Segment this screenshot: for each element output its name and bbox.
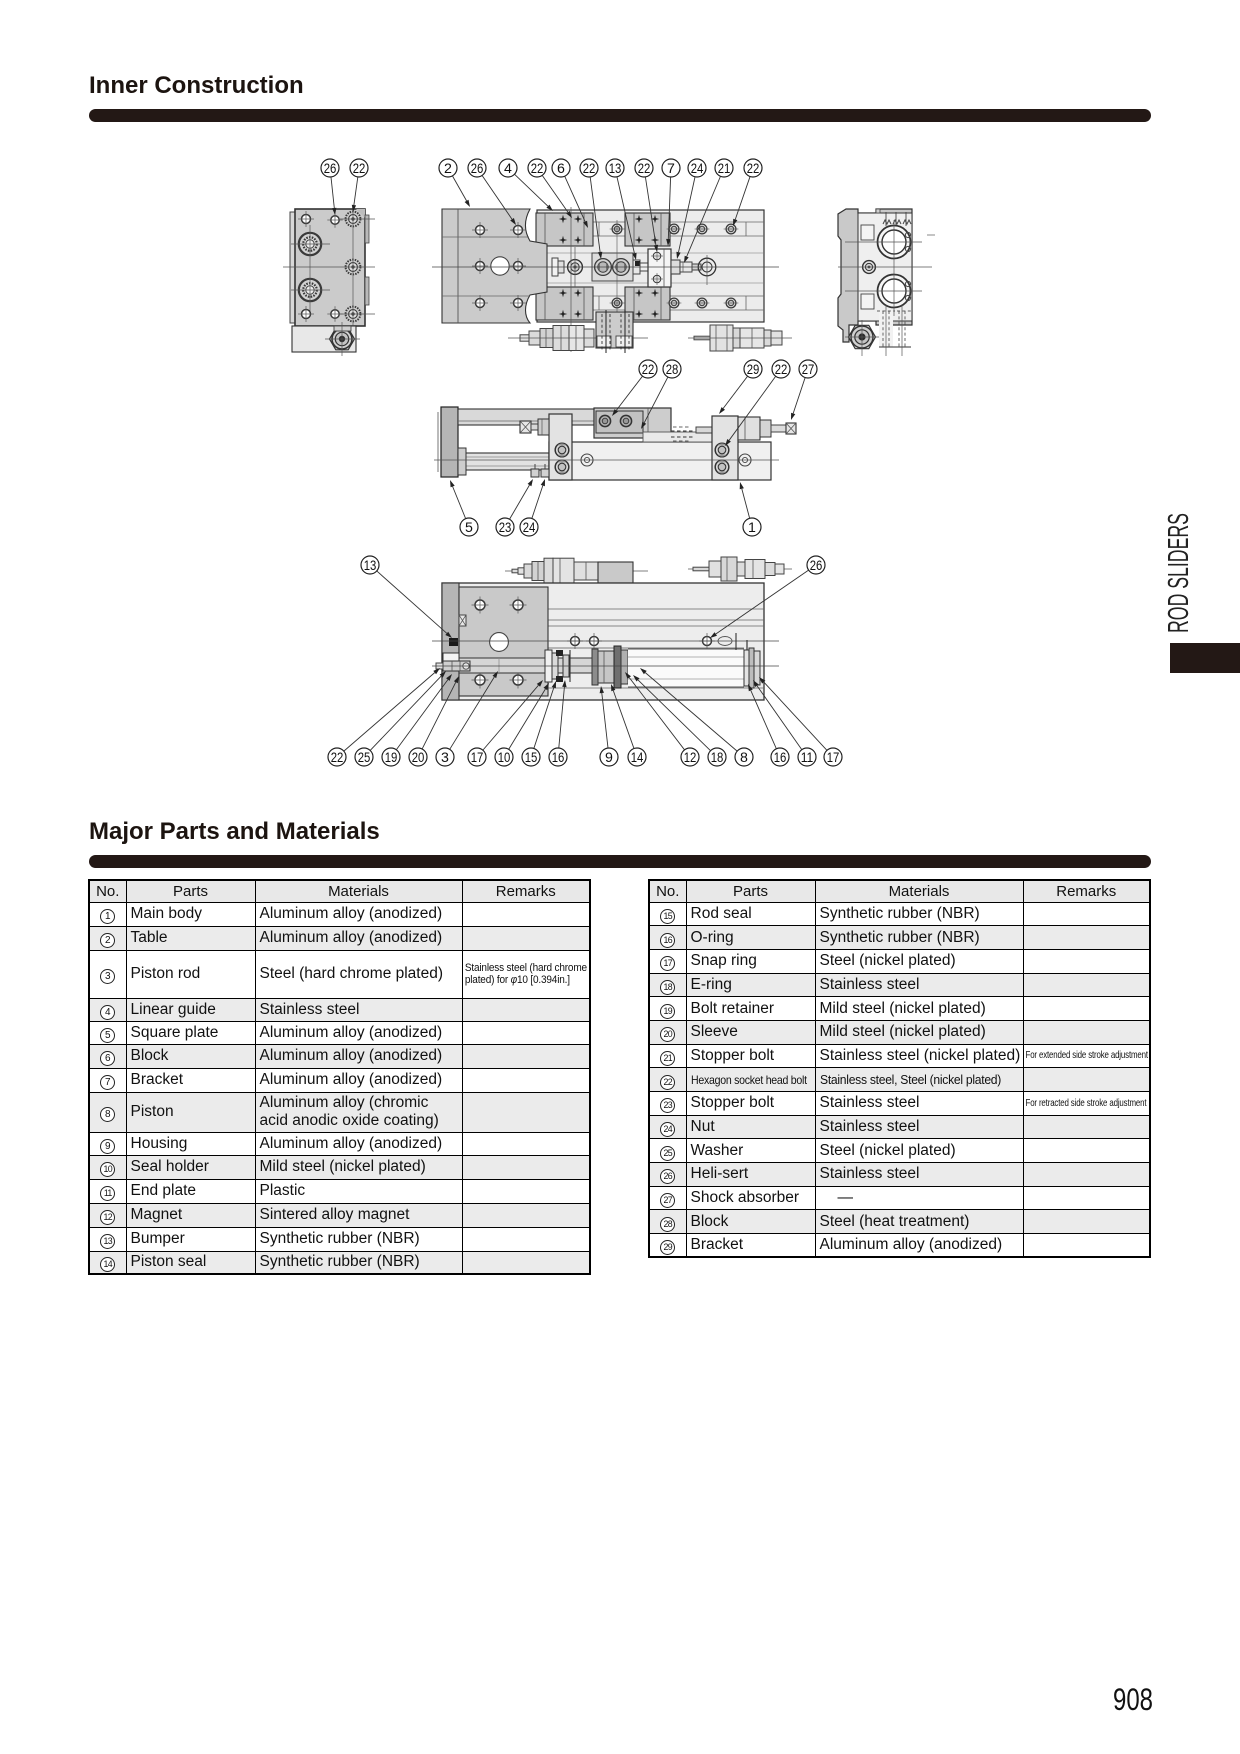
svg-text:18: 18 [711, 750, 724, 766]
svg-text:24: 24 [523, 520, 536, 536]
svg-text:22: 22 [642, 362, 655, 378]
svg-text:8: 8 [740, 750, 748, 766]
svg-text:17: 17 [471, 750, 484, 766]
svg-text:1: 1 [748, 520, 756, 536]
svg-text:26: 26 [810, 558, 823, 574]
svg-text:28: 28 [666, 362, 679, 378]
svg-text:22: 22 [638, 161, 651, 177]
svg-text:21: 21 [718, 161, 731, 177]
svg-text:29: 29 [747, 362, 760, 378]
svg-text:16: 16 [774, 750, 787, 766]
svg-text:23: 23 [499, 520, 512, 536]
svg-text:22: 22 [331, 750, 344, 766]
svg-text:9: 9 [605, 750, 613, 766]
svg-text:13: 13 [364, 558, 377, 574]
svg-text:15: 15 [525, 750, 538, 766]
svg-text:11: 11 [801, 750, 814, 766]
svg-text:16: 16 [552, 750, 565, 766]
svg-text:14: 14 [631, 750, 644, 766]
svg-text:22: 22 [531, 161, 544, 177]
svg-text:3: 3 [441, 750, 449, 766]
svg-text:25: 25 [358, 750, 371, 766]
svg-text:6: 6 [557, 161, 565, 177]
svg-text:2: 2 [444, 161, 452, 177]
svg-text:22: 22 [583, 161, 596, 177]
svg-text:4: 4 [504, 161, 512, 177]
svg-text:20: 20 [412, 750, 425, 766]
svg-text:22: 22 [747, 161, 760, 177]
svg-text:22: 22 [775, 362, 788, 378]
svg-text:17: 17 [827, 750, 840, 766]
svg-text:26: 26 [324, 161, 337, 177]
svg-text:5: 5 [465, 520, 473, 536]
svg-text:19: 19 [385, 750, 398, 766]
svg-text:24: 24 [691, 161, 704, 177]
svg-text:10: 10 [498, 750, 511, 766]
svg-text:22: 22 [353, 161, 366, 177]
svg-text:12: 12 [684, 750, 697, 766]
svg-text:7: 7 [667, 161, 675, 177]
svg-text:27: 27 [802, 362, 815, 378]
svg-text:13: 13 [609, 161, 622, 177]
svg-text:26: 26 [471, 161, 484, 177]
